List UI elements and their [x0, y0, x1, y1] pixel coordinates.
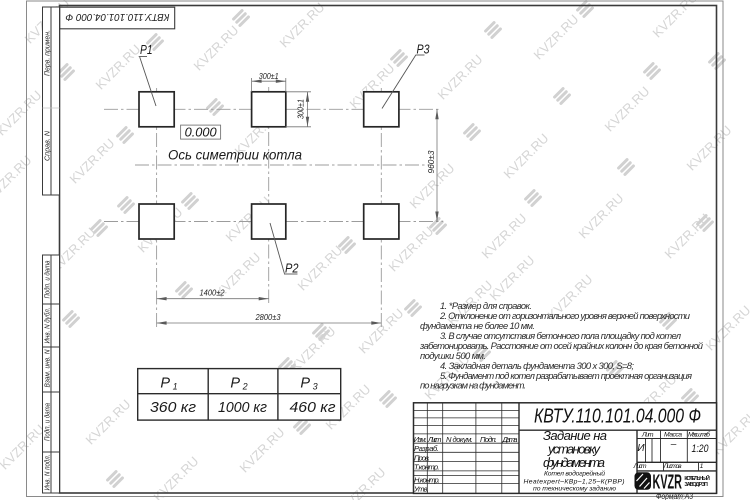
svg-text:Инв. N дубл.: Инв. N дубл. [44, 307, 52, 343]
svg-text:по техническому заданию: по техническому заданию [533, 485, 616, 493]
svg-text:Лист: Лист [427, 435, 442, 444]
svg-text:Листов: Листов [663, 463, 682, 470]
svg-text:Изм.: Изм. [414, 435, 427, 444]
svg-text:по нагрузкам на фундамент.: по нагрузкам на фундамент. [420, 379, 526, 390]
svg-text:–: – [670, 439, 677, 450]
svg-text:КВТУ.110.101.04.000 Ф: КВТУ.110.101.04.000 Ф [66, 11, 170, 23]
svg-text:Формат А3: Формат А3 [656, 491, 693, 500]
svg-text:300±1: 300±1 [296, 99, 306, 119]
svg-text:0.000: 0.000 [185, 125, 217, 139]
svg-text:Подп. и дата: Подп. и дата [44, 260, 52, 298]
svg-text:P1: P1 [140, 42, 153, 57]
svg-text:1. *Размер для справок.: 1. *Размер для справок. [440, 300, 532, 311]
svg-text:КОТЕЛЬНЫЙ: КОТЕЛЬНЫЙ [684, 474, 710, 482]
svg-text:Пров.: Пров. [414, 453, 430, 462]
svg-text:Масштаб: Масштаб [688, 431, 711, 439]
svg-text:2800±3: 2800±3 [255, 312, 281, 322]
svg-text:1:20: 1:20 [692, 443, 710, 455]
svg-text:Справ. N: Справ. N [45, 130, 52, 161]
svg-text:Перв. примен.: Перв. примен. [45, 30, 52, 76]
svg-text:ЗАВОД РЭП: ЗАВОД РЭП [684, 482, 708, 488]
svg-text:Утв.: Утв. [413, 485, 429, 494]
svg-text:Лист: Лист [633, 463, 647, 470]
svg-text:Heatexpert–КВр–1,25–К(РВР): Heatexpert–КВр–1,25–К(РВР) [524, 478, 625, 485]
svg-text:Лит.: Лит. [641, 432, 654, 439]
svg-text:Котел водогрейный: Котел водогрейный [544, 470, 605, 478]
svg-text:фундамента: фундамента [543, 455, 605, 470]
svg-text:Взам. инв. N: Взам. инв. N [45, 349, 52, 388]
svg-text:360 кг: 360 кг [150, 400, 196, 416]
svg-text:И: И [637, 443, 645, 454]
svg-text:300±1: 300±1 [259, 71, 279, 81]
svg-text:Задание на: Задание на [543, 428, 607, 443]
svg-text:Т.контр.: Т.контр. [414, 463, 440, 472]
svg-text:KVZR: KVZR [653, 471, 683, 493]
svg-text:Подп. и дата: Подп. и дата [44, 403, 52, 441]
svg-text:КВТУ.110.101.04.000 Ф: КВТУ.110.101.04.000 Ф [534, 406, 701, 428]
svg-text:P3: P3 [417, 42, 431, 57]
svg-text:Масса: Масса [664, 432, 682, 439]
svg-text:1400±2: 1400±2 [200, 288, 225, 298]
svg-text:1000 кг: 1000 кг [218, 400, 267, 416]
svg-text:Н.контр.: Н.контр. [414, 476, 440, 485]
svg-text:460 кг: 460 кг [290, 400, 336, 416]
svg-text:Ось симетрии котла: Ось симетрии котла [168, 147, 302, 163]
svg-text:960±3: 960±3 [426, 150, 436, 173]
svg-text:Подп.: Подп. [480, 435, 497, 444]
svg-text:1: 1 [700, 463, 704, 470]
svg-text:Разраб.: Разраб. [414, 444, 439, 453]
svg-text:Инв. N подл.: Инв. N подл. [44, 454, 52, 490]
svg-text:P2: P2 [285, 261, 299, 276]
svg-text:N докум.: N докум. [446, 435, 473, 444]
svg-text:Дата: Дата [502, 435, 518, 444]
